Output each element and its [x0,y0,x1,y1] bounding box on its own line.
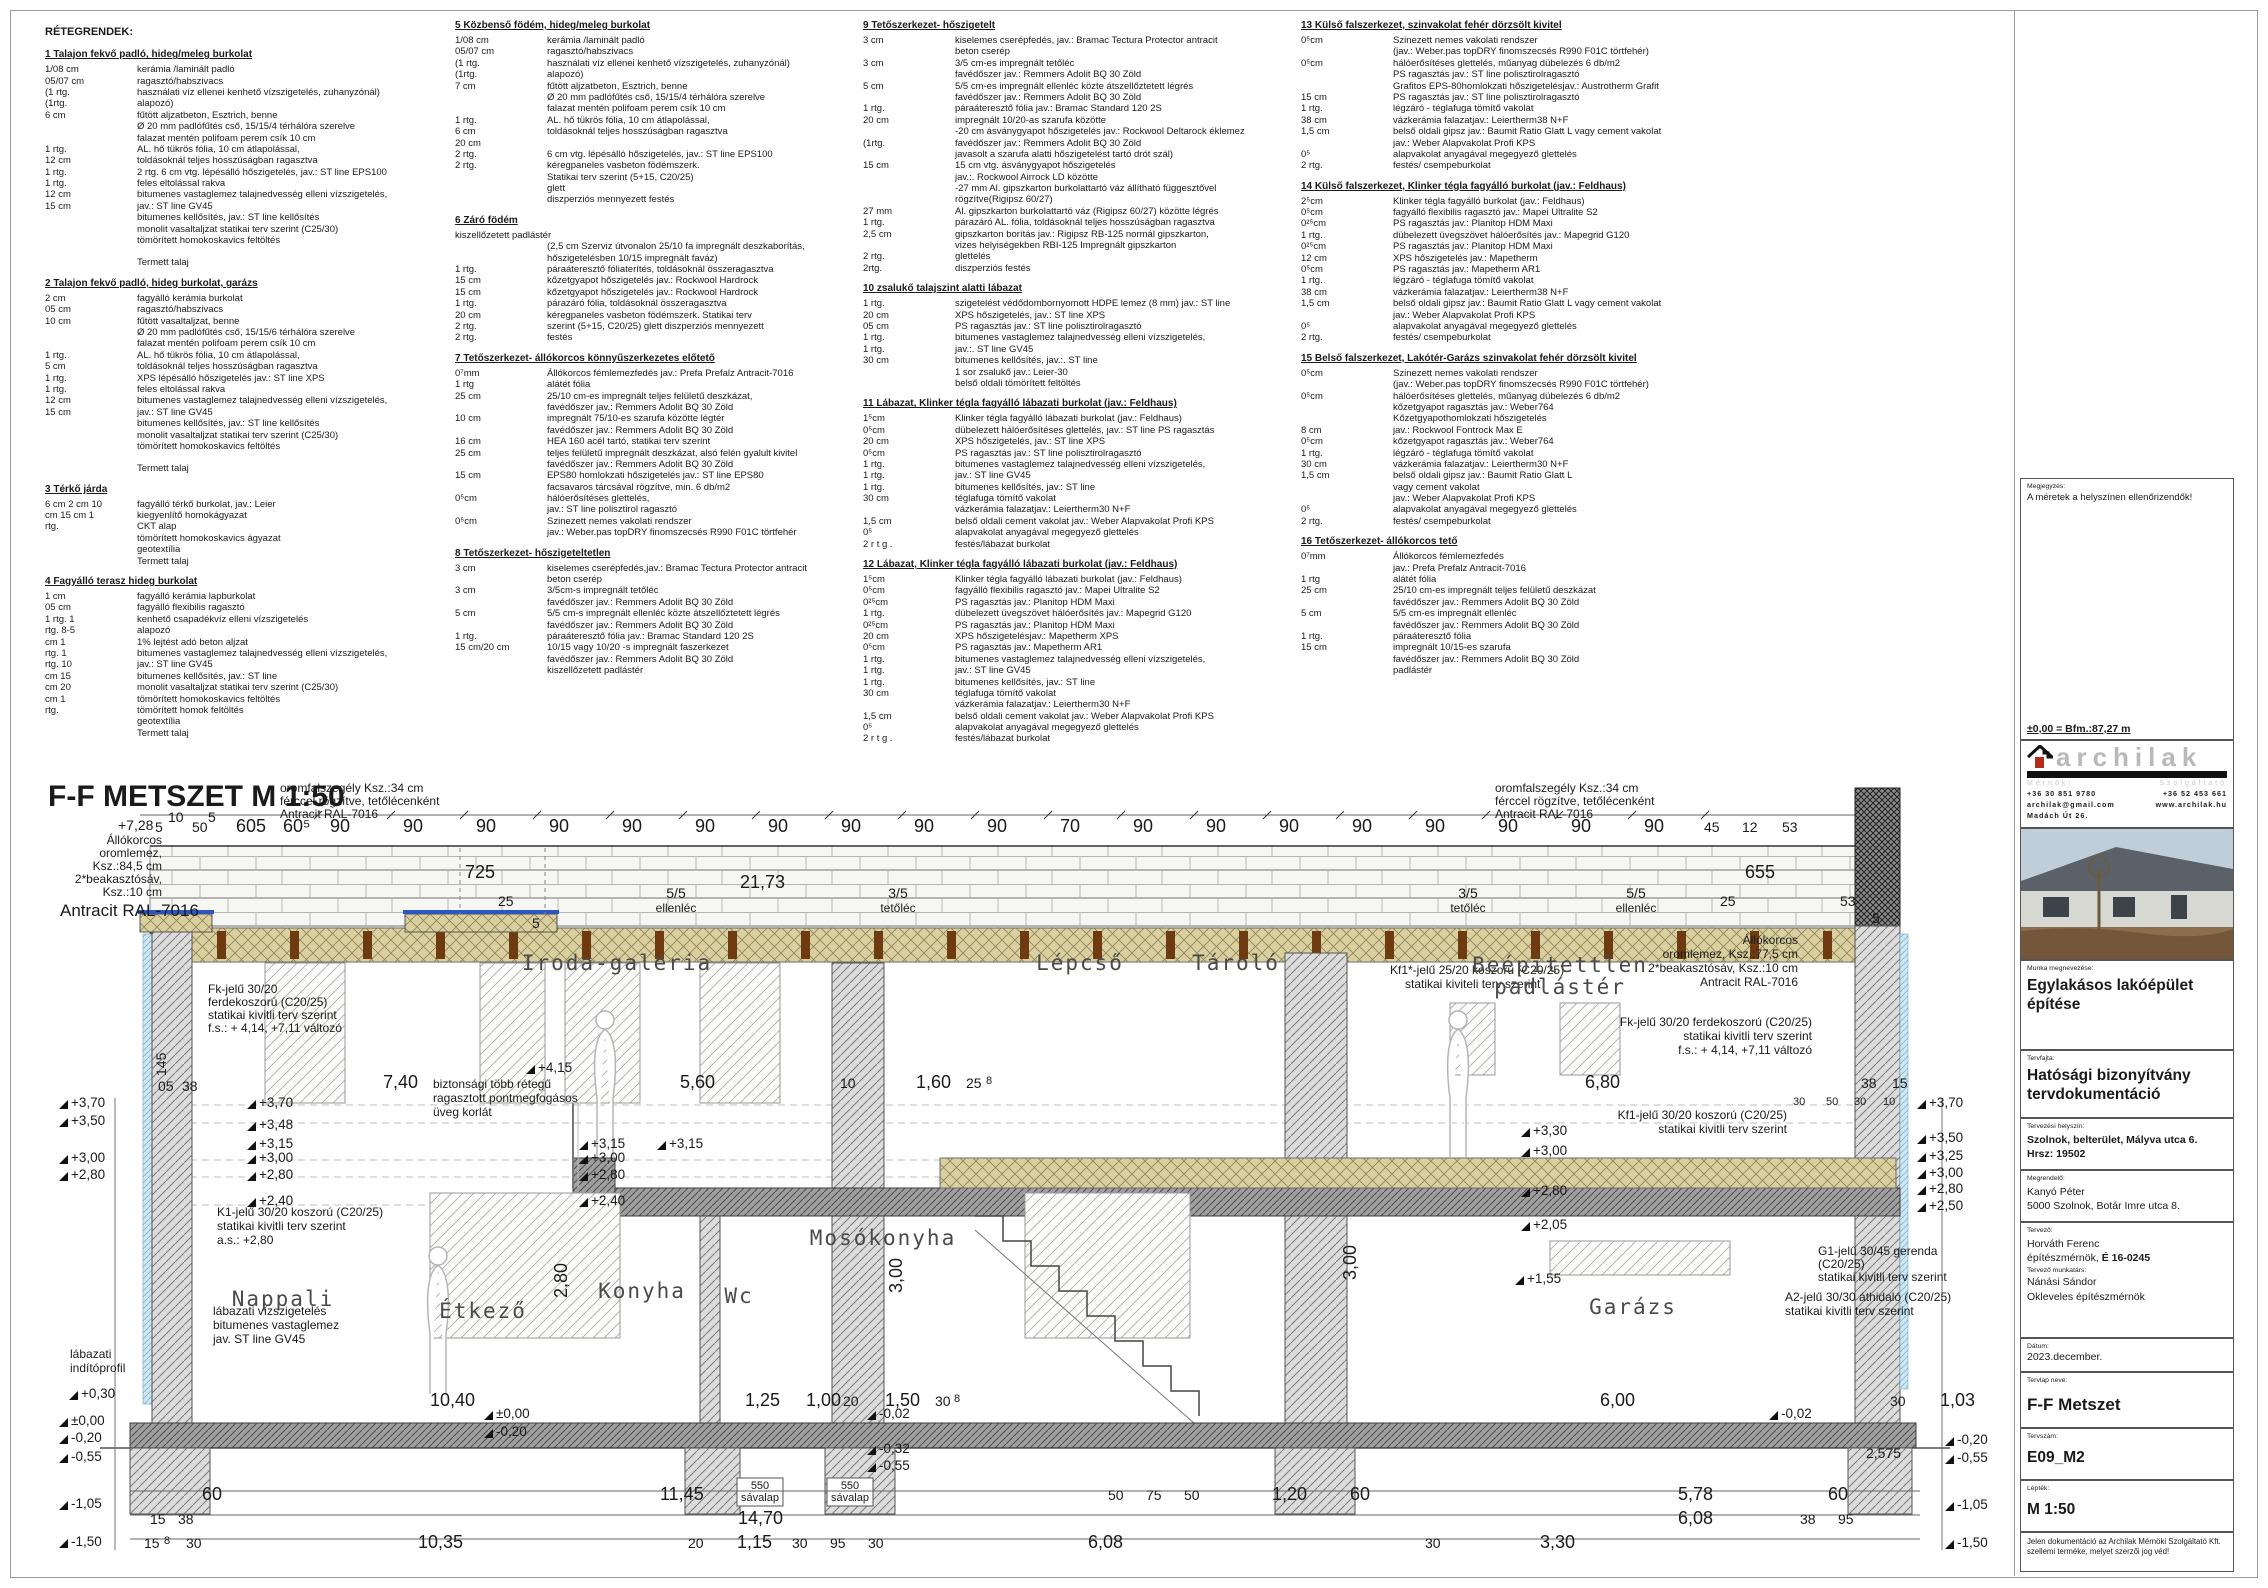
section-drawing: F-F METSZET M 1:5010555060560⁵9090909090… [40,758,2010,1558]
legend-row: rtg. 8-5alapozó [45,625,437,636]
legend-row: 15 cmPS ragasztás jav.: ST line poliszti… [1301,92,1693,103]
legend-row: 25 cm25/10 cm-es impregnált teljes felül… [1301,585,1693,596]
svg-text:+3,00: +3,00 [1929,1165,1963,1180]
dimension-label: 05 [158,1078,174,1094]
legend-row: 1 rtg.AL. hő tükrös fólia, 10 cm átlapol… [45,144,437,155]
legend-row: Termett talaj [45,463,437,474]
legend-column-3: 9 Tetőszerkezet- hőszigetelt3 cmkiseleme… [863,20,1255,754]
legend-row: geotextília [45,716,437,727]
legend-row: tömörített homokoskavics feltöltés [45,441,437,452]
legend-section: 14 Külső falszerkezet, Klinker tégla fag… [1301,181,1693,344]
legend-row: 5 cm5/5 cm-s impregnált ellenléc közte á… [455,608,847,619]
logo: archilak [2027,745,2227,769]
svg-text:-1,05: -1,05 [1957,1497,1988,1512]
legend-row: jav.: Weber Alapvakolat Profi KPS [1301,138,1693,149]
legend-row: favédőszer jav.: Remmers Adolit BQ 30 Zö… [455,654,847,665]
dimension-label: 95 [830,1535,846,1551]
legend-row: 7 cmfűtött aljzatbeton, Esztrich, benne [455,81,847,92]
legend-row: 0²⁵cmPS ragasztás jav.: Planitop HDM Max… [1301,218,1693,229]
elevation-marker: +3,50 [59,1113,105,1128]
dimension-label: 1,20 [1272,1484,1307,1504]
dimension-label: 145 [153,1052,169,1076]
legend-row: tömörített homokoskavics ágyazat [45,533,437,544]
legend-row: 1 rtg.bitumenes vastaglemez talajnedvess… [863,459,1255,470]
dimension-label: 90 [987,816,1007,836]
legend-row: 6 cmtoldásoknál teljes hosszúságban raga… [455,126,847,137]
date-box: Dátum: 2023.december. [2020,1338,2234,1372]
svg-text:-0,55: -0,55 [879,1458,910,1473]
legend-row: 2 rtg.glettelés [863,251,1255,262]
legend-row: 2 r t g .festés/lábazat burkolat [863,733,1255,744]
legend-row: rtg.tömörített homok feltöltés [45,705,437,716]
designer-name: Horváth Ferenc [2027,1238,2099,1250]
svg-text:-0,20: -0,20 [496,1424,527,1439]
legend-row: 2rtg.diszperziós festés [863,263,1255,274]
legend-row: monolit vasaltaljzat statikai terv szeri… [45,430,437,441]
dimension-label: 30 [1890,1393,1906,1409]
annotation: Antracit RAL-7016 [1700,975,1798,989]
dimension-label: 90 [1206,816,1226,836]
legend-row: 5 cmtoldásoknál teljes hosszúságban raga… [45,361,437,372]
legend-row: 1 rtg.dübelezett üvegszövet hálóerősítés… [863,608,1255,619]
annotation: statikai kivitli terv szerint [217,1219,346,1233]
elevation-marker: +3,15 [579,1136,625,1151]
legend-row: favédőszer jav.: Remmers Adolit BQ 30 Zö… [863,92,1255,103]
annotation: statikai kivitli terv szerint [1683,1029,1812,1043]
legend-row: 12 cmXPS hőszigetelés jav.: Mapetherm [1301,253,1693,264]
svg-text:+2,80: +2,80 [1533,1183,1567,1198]
legend-section: 5 Közbenső födém, hideg/meleg burkolat1/… [455,20,847,206]
svg-text:+3,50: +3,50 [1929,1130,1963,1145]
dimension-label: 25 [1720,893,1736,909]
legend-row: favédőszer jav.: Remmers Adolit BQ 30 Zö… [455,459,847,470]
project-name-label: Munka megnevezése: [2027,965,2227,972]
legend-row: rtg. 10jav.: ST line GV45 [45,659,437,670]
legend-section-title: 9 Tetőszerkezet- hőszigetelt [863,20,1255,32]
dimension-label: 605 [236,816,266,836]
dimension-label: +7,28 [118,817,154,833]
dimension-label: 1,25 [745,1390,780,1410]
legend-row: 1,5 cmbelső oldali gipsz jav.: Baumit Ra… [1301,470,1693,481]
dimension-label: 38 [1861,1075,1877,1091]
logo-box: archilak Mérnöki Szolgáltató +36 30 851 … [2020,740,2234,828]
elevation-marker: +3,48 [247,1117,293,1132]
legend-row: 2 rtg.festés [455,332,847,343]
legend-row: 15 cmimpregnált 10/15-es szarufa [1301,642,1693,653]
legend-row: 1 rtg.2 rtg. 6 cm vtg. lépésálló hőszige… [45,167,437,178]
dimension-label: 45 [1704,819,1720,835]
legend-row: 12 cmbitumenes vastaglemez talajnedvessé… [45,395,437,406]
legend-row: 20 cmkéregpaneles vasbeton födémszerk. S… [455,310,847,321]
dimension-label: 30 [1854,1096,1866,1108]
dimension-label: 30 [868,1535,884,1551]
ground-slab [130,1423,1916,1448]
annotation: Állókorcos [107,832,162,847]
legend-section-title: 14 Külső falszerkezet, Klinker tégla fag… [1301,181,1693,193]
annotation: lábazati [70,1347,111,1361]
dimension-label: 25 [966,1075,982,1091]
annotation: férccel rögzítve, tetőlécenként [280,794,440,808]
legend-row: 25 cm25/10 cm-es impregnált teljes felül… [455,391,847,402]
elevation-marker: +3,15 [657,1136,703,1151]
co-designer-name: Nánási Sándor [2027,1276,2096,1288]
legend-row: 1 rtg.bitumenes vastaglemez talajnedvess… [863,332,1255,343]
svg-text:+3,50: +3,50 [71,1113,105,1128]
legend-row: monolit vasaltaljzat statikai terv szeri… [45,224,437,235]
dimension-label: 90 [695,816,715,836]
legend-row: rtg.CKT alap [45,521,437,532]
annotation: Antracit RAL-7016 [1495,807,1593,821]
dimension-label: 30 [1793,1096,1805,1108]
legend-row: 3 cmkiselemes cserépfedés, jav.: Bramac … [863,35,1255,46]
legend-section: 4 Fagyálló terasz hideg burkolat1 cmfagy… [45,576,437,739]
dimension-label: sávalap [831,1492,869,1504]
elevation-marker: -0,20 [59,1430,102,1445]
legend-row: 1 rtg.bitumenes kellősítés, jav.: ST lin… [863,482,1255,493]
annotation: ellenléc [656,901,697,915]
project-name-box: Munka megnevezése: Egylakásos lakóépület… [2020,960,2234,1050]
contact-info: +36 30 851 9780 archilak@gmail.com Madác… [2027,789,2227,821]
legend-row: 16 cmHEA 160 acél tartó, statikai terv s… [455,436,847,447]
annotation: tetőléc [880,901,915,915]
room-label: Wc [724,1284,753,1308]
dimension-label: 5/5 [666,885,686,901]
legend-row: 1/08 cmkerámia /laminált padló [45,64,437,75]
legend-row: 1 rtg. 1kenhető csapadékvíz elleni vízsz… [45,614,437,625]
legend-row: 0⁵cmhálóerősítéses glettelés, [455,493,847,504]
legend-row: (1rtg.alapozó) [45,98,437,109]
designer-box: Tervező: Horváth Ferenc építészmérnök, É… [2020,1222,2234,1338]
legend-row: 25 cmteljes felületű impregnált deszkáza… [455,448,847,459]
legend-row: (2,5 cm Szerviz útvonalon 25/10 fa impre… [455,241,847,252]
room-label: Lépcső [1036,951,1124,975]
elevation-marker: +2,80 [247,1167,293,1182]
legend-row: Ø 20 mm padlófűtés cső, 15/15/6 térhálór… [45,327,437,338]
legend-row: 1 rtg.bitumenes vastaglemez talajnedvess… [863,654,1255,665]
elevation-marker: +3,70 [1917,1095,1963,1110]
legend-row: geotextília [45,544,437,555]
legend-row: 6 cmfűtött aljzatbeton, Esztrich, benne [45,110,437,121]
designer-label: Tervező: [2027,1227,2227,1234]
legend-row: 20 cm [455,138,847,149]
legend-section: 16 Tetőszerkezet- állókorcos tető0⁷mmÁll… [1301,536,1693,676]
dimension-label: 90 [914,816,934,836]
room-label: padlástér [1494,975,1626,999]
legend-heading: RÉTEGRENDEK: [45,26,437,39]
dimension-label: 5,78 [1678,1484,1713,1504]
annotation: f.s.: + 4,14, +7,11 változó [208,1021,342,1035]
annotation: statikai kivitli terv szerint [1785,1304,1914,1318]
legend-row: 05/07 cmragasztó/habszivacs [45,76,437,87]
legend-row: 38 cmvázkerámia falazatjav.: Leiertherm3… [1301,115,1693,126]
legend-row: Grafitos EPS-80homlokzati hőszigetelésja… [1301,81,1693,92]
logo-subtitle: Mérnöki Szolgáltató [2027,780,2227,787]
dimension-label: 38 [182,1078,198,1094]
designer-license: É 16-0245 [2102,1252,2150,1264]
strip-footings [130,1448,1912,1514]
legend-row: 2 cmfagyálló kerámia burkolat [45,293,437,304]
logo-wordmark: archilak [2056,746,2202,769]
legend-row: 05 cmfagyálló flexibilis ragasztó [45,602,437,613]
svg-text:+2,80: +2,80 [259,1167,293,1182]
legend-row: jav.: ST line polisztirol ragasztó [455,504,847,515]
room-label: Iroda-galéria [522,951,712,975]
dimension-label: 6,08 [1088,1532,1123,1552]
svg-text:-0,55: -0,55 [71,1449,102,1464]
legend-row: (1rtg.alapozó) [455,69,847,80]
scale-label: Lépték: [2027,1485,2227,1492]
datum-reference: ±0,00 = Bfm.:87,27 m [2027,723,2131,735]
reference-photo [2020,828,2234,960]
legend-row: 0⁵cmkőzetgyapot ragasztás jav.: Weber764 [1301,436,1693,447]
legend-row: falazat mentén polifoam perem csík 10 cm [455,103,847,114]
legend-row: 1 rtg.feles eltolással rakva [45,178,437,189]
plan-type-box: Tervfajta: Hatósági bizonyítvány tervdok… [2020,1050,2234,1118]
legend-row: jav.: Weber Alapvakolat Profi KPS [1301,310,1693,321]
legend-row: 2,5 cmgipszkarton borítás jav.: Rigipsz … [863,229,1255,240]
legend-row: falazat mentén polifoam perem csík 10 cm [45,338,437,349]
svg-text:-0,20: -0,20 [1957,1432,1988,1447]
legend-row: 2 rtg.szerint (5+15, C20/25) glett diszp… [455,321,847,332]
annotation: ferdekoszorú (C20/25) [208,995,327,1009]
legend-row: (1 rtg.használati víz ellenei kenhető ví… [45,87,437,98]
legend-row: 0⁷mmÁllókorcos fémlemezfedés [1301,551,1693,562]
legend-section: 15 Belső falszerkezet, Lakótér-Garázs sz… [1301,353,1693,527]
legend-row: 0⁵alapvakolat anyagával megegyező glette… [863,722,1255,733]
legend-row: 1,5 cmbelső oldali gipsz jav.: Baumit Ra… [1301,126,1693,137]
elevation-marker: -1,05 [59,1496,102,1511]
dimension-label: 15 [1892,1075,1908,1091]
dimension-label: 15 [150,1511,166,1527]
legend-row: favédőszer jav.: Remmers Adolit BQ 30 Zö… [1301,654,1693,665]
dimension-label: 8 [954,1393,960,1405]
legend-row: Termett talaj [45,257,437,268]
legend-row: 1⁵cmKlinker tégla fagyálló lábazati burk… [863,574,1255,585]
dimension-label: 90 [403,816,423,836]
dimension-label: 10,40 [430,1390,475,1410]
annotation: 2*beakasztósáv, [75,872,162,886]
svg-text:-0,02: -0,02 [879,1406,910,1421]
elevation-marker: +3,70 [247,1095,293,1110]
logo-sub-right: Szolgáltató [2159,780,2227,787]
dimension-label: 30 [186,1535,202,1551]
legend-section-title: 4 Fagyálló terasz hideg burkolat [45,576,437,588]
legend-row: 1,5 cmbelső oldali gipsz jav.: Baumit Ra… [1301,298,1693,309]
legend-row: (jav.: Weber.pas topDRY finomszecsés R99… [1301,46,1693,57]
legend-column-1: RÉTEGRENDEK: 1 Talajon fekvő padló, hide… [45,20,437,748]
svg-text:-0,32: -0,32 [879,1441,910,1456]
dimension-label: 2,575 [1866,1445,1901,1461]
dimension-label: 30 [792,1535,808,1551]
legend-row: 12 cmtoldásoknál teljes hosszúságban rag… [45,155,437,166]
legend-row: 0⁵cmdübelezett hálóerősítéses glettelés,… [863,425,1255,436]
co-designer-label: Tervező munkatárs: [2027,1267,2227,1274]
legend-row: -27 mm Al. gipszkarton burkolattartó váz… [863,183,1255,194]
legend-row: 8 cmjav.: Rockwool Fontrock Max E [1301,425,1693,436]
legend-row: 0⁵cmSzinezett nemes vakolati rendszer [1301,368,1693,379]
svg-text:+3,25: +3,25 [1929,1148,1963,1163]
legend-row: 1 rtgalátét fólia [455,379,847,390]
legend-row: 1 rtg.bitumenes kellősítés, jav.: ST lin… [863,677,1255,688]
legend-row: 1 rtg.AL. hő tükrös fólia, 10 cm átlapol… [455,115,847,126]
room-label: Garázs [1589,1295,1677,1319]
elevation-marker: -0,02 [1769,1406,1812,1421]
dimension-label: 25 [498,893,514,909]
legend-row: -20 cm ásványgyapot hőszigetelés jav.: R… [863,126,1255,137]
project-name: Egylakásos lakóépület építése [2027,976,2227,1015]
annotation: f.s.: + 4,14, +7,11 változó [1678,1043,1812,1057]
legend-row: 1,5 cmbelső oldali cement vakolat jav.: … [863,711,1255,722]
elevation-marker: -1,50 [59,1534,102,1549]
date-value: 2023.december. [2027,1350,2227,1364]
dimension-label: 5 [1872,910,1880,926]
legend-row: 1 rtg.jav.:. ST line GV45 [863,344,1255,355]
designer-title: építészmérnök, [2027,1252,2099,1264]
legend-row: 0⁵cmhálóerősítéses glettelés, műanyag dü… [1301,58,1693,69]
legend-row: 15 cmkőzetgyapot hőszigetelés jav.: Rock… [455,287,847,298]
svg-text:+3,15: +3,15 [591,1136,625,1151]
site-label: Tervezési helyszín: [2027,1123,2227,1130]
dimension-label: 75 [1146,1487,1162,1503]
annotation: Antracit RAL-7016 [60,901,199,920]
legend-row: 20 cmXPS hőszigetelés, jav.: ST line XPS [863,436,1255,447]
legend-row: 15 cmjav.: ST line GV45 [45,407,437,418]
legend-row: 05 cmragasztó/habszivacs [45,304,437,315]
legend-row: 1 rtg.AL. hő tükrös fólia, 10 cm átlapol… [45,350,437,361]
legend-section-title: 6 Záró födém [455,215,847,227]
dimension-label: 90 [549,816,569,836]
legend-row: falazat mentén polifoam perem csík 10 cm [45,133,437,144]
svg-text:+0,30: +0,30 [81,1386,115,1401]
legend-row: 20 cmXPS hőszigetelésjav.: Mapetherm XPS [863,631,1255,642]
legend-row: favédőszer jav.: Remmers Adolit BQ 30 Zö… [863,69,1255,80]
legend-row: tömörített homokoskavics feltöltés [45,235,437,246]
legend-row: 1 rtg.légzáró - téglafuga tömítő vakolat [1301,275,1693,286]
legend-row [45,246,437,257]
legend-row: 0⁵cmPS ragasztás jav.: ST line polisztir… [863,448,1255,459]
svg-text:+2,80: +2,80 [1929,1181,1963,1196]
legend-section: 10 zsalukő talajszint alatti lábazat1 rt… [863,283,1255,389]
elevation-marker: +3,00 [1521,1143,1567,1158]
annotation: bitumenes vastaglemez [213,1318,339,1332]
legend-row: 05/07 cmragasztó/habszivacs [455,46,847,57]
svg-text:-0,20: -0,20 [71,1430,102,1445]
legend-row: 1/08 cmkerámia /laminált padló [455,35,847,46]
legend-column-4: 13 Külső falszerkezet, szinvakolat fehér… [1301,20,1693,686]
legend-row: 1 cmfagyálló kerámia lapburkolat [45,591,437,602]
xps-strip-left [143,934,152,1404]
legend-row: 2 rtg.kéregpaneles vasbeton födémszerk. [455,160,847,171]
legend-row: padlástér [1301,665,1693,676]
annotation: férccel rögzítve, tetőlécenként [1495,794,1655,808]
legend-row: beton cserép [455,574,847,585]
notes-text: A méretek a helyszínen ellenőrizendők! [2027,492,2227,503]
site-box: Tervezési helyszín: Szolnok, belterület,… [2020,1118,2234,1170]
svg-text:+3,70: +3,70 [1929,1095,1963,1110]
legend-row: favédőszer jav.: Remmers Adolit BQ 30 Zö… [1301,597,1693,608]
svg-text:+2,50: +2,50 [1929,1198,1963,1213]
legend-section-title: 8 Tetőszerkezet- hőszigeteltetlen [455,548,847,560]
legend-section: 9 Tetőszerkezet- hőszigetelt3 cmkiseleme… [863,20,1255,274]
legend-section: 6 Záró födémkiszellőzetett padlástér(2,5… [455,215,847,344]
svg-text:±0,00: ±0,00 [496,1406,530,1421]
legend-row: jav.: Weber.pas topDRY finomszecsés R990… [455,527,847,538]
legend-row: 15 cmkőzetgyapot hőszigetelés jav.: Rock… [455,275,847,286]
dimension-label: 550 [841,1480,859,1492]
legend-row: beton cserép [863,46,1255,57]
legend-row: bitumenes kellősítés, jav.: ST line kell… [45,418,437,429]
elevation-marker: +3,00 [579,1150,625,1165]
annotation: statikai kivitli terv szerint [1818,1270,1947,1284]
legend-row: 27 mmAl. gipszkarton burkolattartó váz (… [863,206,1255,217]
legend-row: 2 r t g .festés/lábazat burkolat [863,539,1255,550]
legend-section-title: 5 Közbenső födém, hideg/meleg burkolat [455,20,847,32]
legend-row: 1 rtg.légzáró - téglafuga tömítő vakolat [1301,448,1693,459]
dimension-label: 14,70 [738,1508,783,1528]
dimension-label: 8 [986,1075,992,1087]
legend-row: belső oldali tömörített feltöltés [863,378,1255,389]
legend-row: 3 cmkiselemes cserépfedés,jav.: Bramac T… [455,563,847,574]
plan-type: Hatósági bizonyítvány tervdokumentáció [2027,1066,2227,1105]
legend-row: 0⁷mmÁllókorcos fémlemezfedés jav.: Prefa… [455,368,847,379]
dimension-label: 3/5 [888,885,908,901]
annotation: indítóprofil [70,1361,125,1375]
legend-section-title: 10 zsalukő talajszint alatti lábazat [863,283,1255,295]
legend-row: favédőszer jav.: Remmers Adolit BQ 30 Zö… [455,425,847,436]
legend-row: 38 cmvázkerámia falazatjav.: Leiertherm3… [1301,287,1693,298]
dimension-label: 90 [1644,816,1664,836]
dimension-label: 38 [1800,1511,1816,1527]
legend-row: favédőszer jav.: Remmers Adolit BQ 30 Zö… [455,402,847,413]
annotation: G1-jelű 30/45 gerenda [1818,1244,1938,1258]
legend-row: jav.: Prefa Prefalz Antracit-7016 [1301,563,1693,574]
legend-section: 7 Tetőszerkezet- állókorcos könnyűszerke… [455,353,847,539]
legend-row: 0⁵cmPS ragasztás jav.: Mapetherm AR1 [1301,264,1693,275]
dimension-label: 53 [1840,893,1856,909]
legend-row: 1 rtg.jav.: ST line GV45 [863,665,1255,676]
legend-row: 0⁵cmSzinezett nemes vakolati rendszer [455,516,847,527]
legend-row: 0⁵alapvakolat anyagával megegyező glette… [1301,504,1693,515]
site-address: Szolnok, belterület, Mályva utca 6. [2027,1134,2197,1146]
annotation: biztonsági több rétegű [433,1077,551,1091]
room-label: Beépítettlen [1472,953,1648,977]
room-label: Mosókonyha [810,1226,956,1250]
dimension-label: 3,00 [1340,1245,1360,1280]
annotation: oromfalszegély Ksz.:34 cm [1495,781,1638,795]
annotation: (C20/25) [1818,1257,1865,1271]
legend-row: PS ragasztás jav.: ST line polisztirolra… [1301,69,1693,80]
legend-row: vázkerámia falazatjav.: Leiertherm30 N+F [863,699,1255,710]
dimension-label: 50 [1108,1487,1124,1503]
legend-section: 2 Talajon fekvő padló, hideg burkolat, g… [45,278,437,475]
xps-strip-right [1900,934,1908,1389]
legend-row: (1 rtg.használati víz ellenei kenhető ví… [455,58,847,69]
annotation: Állókorcos [1743,932,1798,947]
svg-text:-1,50: -1,50 [1957,1535,1988,1550]
legend-row: 3 cm3/5cm-s impregnált tetőléc [455,585,847,596]
dimension-label: 1,03 [1940,1390,1975,1410]
dimension-label: 30 [935,1393,951,1409]
dimension-label: 8 [164,1535,170,1547]
legend-row: 2 rtg.festés/ csempeburkolat [1301,332,1693,343]
legend-row: 0⁵alapvakolat anyagával megegyező glette… [1301,321,1693,332]
dimension-label: 90 [622,816,642,836]
dimension-label: 7,40 [383,1072,418,1092]
legend-row: 1 rtg.páraáteresztő fólia jav.: Bramac S… [863,103,1255,114]
dimension-label: 60 [202,1484,222,1504]
dimension-label: 3,30 [1540,1532,1575,1552]
dimension-label: 90 [768,816,788,836]
